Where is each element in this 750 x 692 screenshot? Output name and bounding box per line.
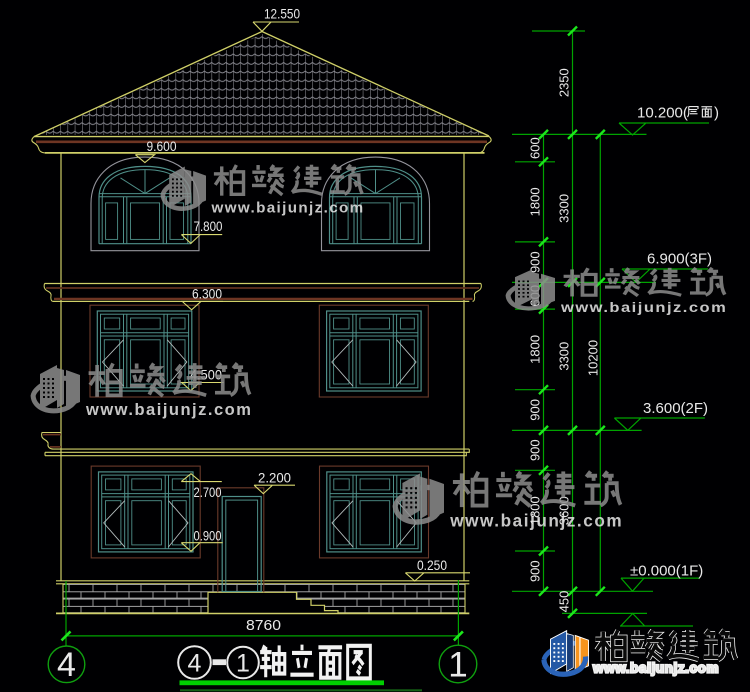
svg-text:10200: 10200 xyxy=(586,340,601,376)
svg-text:600: 600 xyxy=(528,137,543,159)
svg-text:2350: 2350 xyxy=(557,68,572,97)
svg-text:3300: 3300 xyxy=(557,194,572,223)
svg-text:450: 450 xyxy=(557,591,572,613)
svg-text:6.300: 6.300 xyxy=(192,287,222,302)
svg-text:4: 4 xyxy=(57,646,76,684)
svg-text:900: 900 xyxy=(528,251,543,273)
svg-text:900: 900 xyxy=(528,399,543,421)
svg-text:www.baijunjz.com: www.baijunjz.com xyxy=(592,661,719,676)
svg-text:900: 900 xyxy=(528,560,543,582)
svg-text:1800: 1800 xyxy=(528,335,543,364)
svg-text:2.200: 2.200 xyxy=(258,470,291,485)
svg-text:0.900: 0.900 xyxy=(194,528,222,543)
svg-text:2.700: 2.700 xyxy=(194,485,222,500)
svg-text:3.600(2F): 3.600(2F) xyxy=(643,400,708,417)
svg-text:1800: 1800 xyxy=(528,187,543,216)
svg-text:0.250: 0.250 xyxy=(417,558,447,573)
svg-text:): ) xyxy=(714,105,719,122)
svg-text:1: 1 xyxy=(236,650,250,678)
svg-text:4: 4 xyxy=(188,650,202,678)
svg-text:900: 900 xyxy=(528,439,543,461)
svg-text:1: 1 xyxy=(448,646,467,685)
svg-text:8760: 8760 xyxy=(246,618,281,634)
svg-text:3300: 3300 xyxy=(557,342,572,371)
svg-text:9.600: 9.600 xyxy=(147,139,177,154)
svg-text:±0.000(1F): ±0.000(1F) xyxy=(630,563,703,580)
svg-text:6.900(3F): 6.900(3F) xyxy=(647,251,712,268)
svg-text:10.200(: 10.200( xyxy=(637,105,688,122)
svg-text:12.550: 12.550 xyxy=(264,7,300,22)
svg-text:7.800: 7.800 xyxy=(194,219,223,234)
